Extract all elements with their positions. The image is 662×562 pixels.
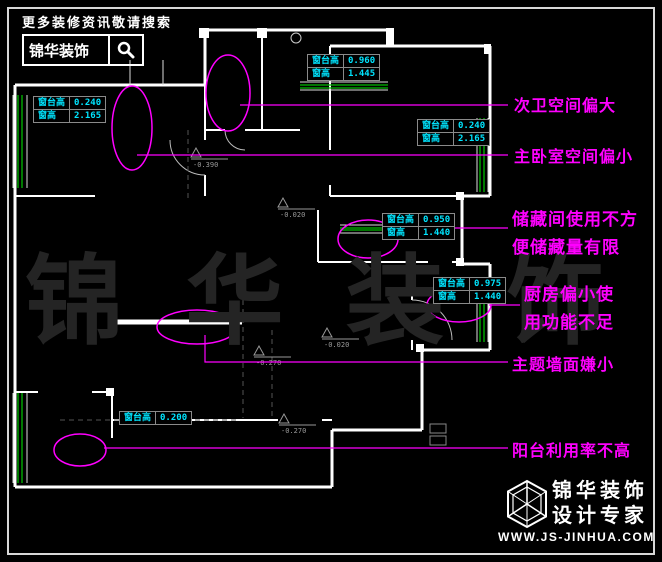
dim-value: 0.960 [344,55,380,68]
level-marker: -0.020 [322,328,359,349]
table-row: 窗高1.440 [434,291,506,304]
dim-value: 0.240 [454,120,490,133]
annotation-master-bedroom: 主卧室空间偏小 [514,144,633,171]
dim-value: 2.165 [70,110,106,123]
ac-unit-symbol [430,424,446,445]
dim-value: 0.200 [156,412,192,425]
level-value: -0.390 [193,161,218,169]
level-value: -0.270 [281,427,306,435]
dim-value: 1.440 [470,291,506,304]
level-value: -0.270 [256,359,281,367]
dim-label: 窗台高 [34,97,70,110]
window-glass-lines [18,85,484,483]
dim-value: 0.240 [70,97,106,110]
table-row: 窗台高0.200 [120,412,192,425]
footer-website: WWW.JS-JINHUA.COM [498,530,655,544]
dim-label: 窗高 [308,68,344,81]
dim-value: 2.165 [454,133,490,146]
annotation-line: 储藏间使用不方 [512,206,638,234]
dim-value: 0.950 [419,214,455,227]
dim-label: 窗高 [34,110,70,123]
table-row: 窗高2.165 [34,110,106,123]
level-value: -0.020 [324,341,349,349]
table-row: 窗高2.165 [418,133,490,146]
footer-brand: 锦华装饰 设计专家 [552,479,648,529]
level-marker: -0.390 [191,148,228,169]
brand-name: 锦华装饰 [24,36,108,64]
window-dimension-table: 窗台高0.240 窗高2.165 [33,96,106,123]
annotation-line: 阳台利用率不高 [512,438,631,465]
floorplan-screenshot: -0.390 -0.020 -0.020 -0.270 -0.270 [0,0,662,562]
annotation-line: 主题墙面嫌小 [512,352,614,379]
cube-logo-icon [504,478,550,530]
window-dimension-table: 窗台高0.240 窗高2.165 [417,119,490,146]
annotation-kitchen: 厨房偏小使 用功能不足 [524,281,614,337]
window-dimension-table: 窗台高0.975 窗高1.440 [433,277,506,304]
highlight-secondary-bath [206,55,250,131]
table-row: 窗台高0.240 [418,120,490,133]
dim-label: 窗台高 [383,214,419,227]
annotation-balcony: 阳台利用率不高 [512,438,631,465]
table-row: 窗台高0.240 [34,97,106,110]
annotation-line: 次卫空间偏大 [514,93,616,120]
dim-value: 1.440 [419,227,455,240]
footer-brand-line2: 设计专家 [552,504,648,529]
annotation-theme-wall: 主题墙面嫌小 [512,352,614,379]
annotation-line: 厨房偏小使 [524,281,614,309]
header-tagline: 更多装修资讯敬请搜索 [22,12,172,31]
window-dimension-table: 窗台高0.200 [119,411,192,425]
window-dimension-table: 窗台高0.950 窗高1.440 [382,213,455,240]
search-icon [108,36,142,64]
construction-lines [60,130,272,420]
annotation-secondary-bath: 次卫空间偏大 [514,93,616,120]
dim-label: 窗台高 [418,120,454,133]
dim-value: 1.445 [344,68,380,81]
annotation-line: 主卧室空间偏小 [514,144,633,171]
dim-label: 窗台高 [308,55,344,68]
dim-value: 0.975 [470,278,506,291]
level-marker: -0.270 [279,414,316,435]
table-row: 窗台高0.975 [434,278,506,291]
fixture-circle [291,33,301,43]
highlight-theme-wall [157,310,237,344]
level-value: -0.020 [280,211,305,219]
dim-label: 窗高 [383,227,419,240]
dim-label: 窗台高 [120,412,156,425]
table-row: 窗台高0.960 [308,55,380,68]
dim-label: 窗高 [434,291,470,304]
annotation-line: 便储藏量有限 [512,234,638,262]
highlight-master-bedroom [112,86,152,170]
footer-brand-line1: 锦华装饰 [552,479,648,504]
dim-label: 窗台高 [434,278,470,291]
search-box: 锦华装饰 [22,34,144,66]
table-row: 窗台高0.950 [383,214,455,227]
window-dimension-table: 窗台高0.960 窗高1.445 [307,54,380,81]
annotation-line: 用功能不足 [524,309,614,337]
level-marker: -0.020 [278,198,315,219]
table-row: 窗高1.440 [383,227,455,240]
annotation-storage: 储藏间使用不方 便储藏量有限 [512,206,638,262]
highlight-balcony [54,434,106,466]
dim-label: 窗高 [418,133,454,146]
level-markers: -0.390 -0.020 -0.020 -0.270 -0.270 [191,148,359,435]
table-row: 窗高1.445 [308,68,380,81]
